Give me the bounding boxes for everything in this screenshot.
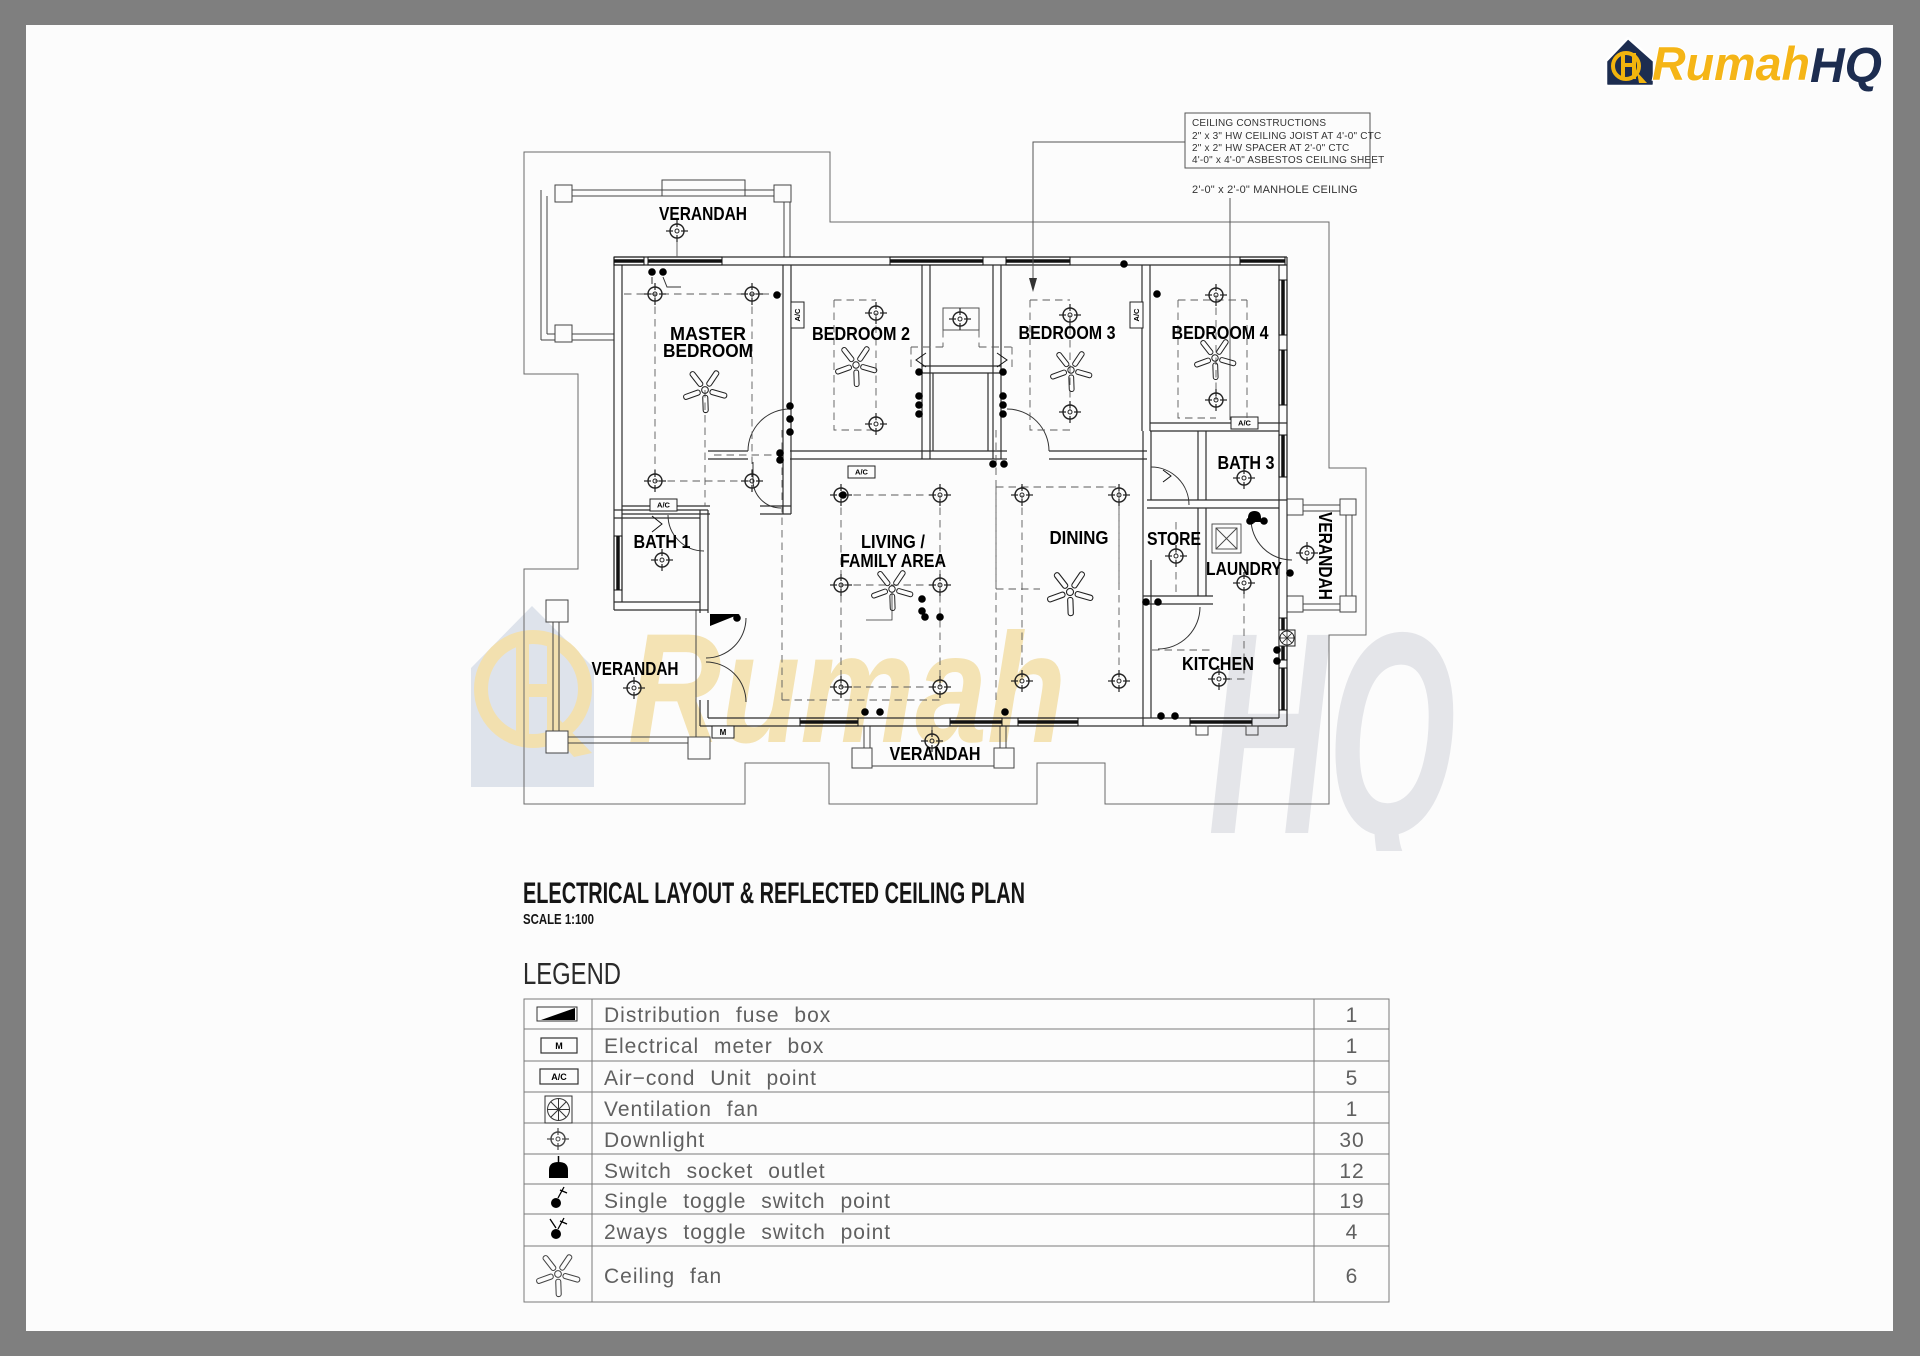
svg-text:2" x 3" HW CEILING JOIST AT 4': 2" x 3" HW CEILING JOIST AT 4'-0" CTC — [1192, 131, 1381, 142]
svg-text:M: M — [555, 1041, 563, 1051]
svg-text:VERANDAH: VERANDAH — [1315, 512, 1335, 600]
svg-text:A/C: A/C — [551, 1072, 567, 1082]
svg-text:SCALE 1:100: SCALE 1:100 — [523, 911, 594, 928]
svg-text:2'-0" x 2'-0" MANHOLE CEILING: 2'-0" x 2'-0" MANHOLE CEILING — [1192, 184, 1358, 196]
svg-text:KITCHEN: KITCHEN — [1182, 654, 1254, 674]
svg-text:6: 6 — [1346, 1265, 1359, 1288]
svg-text:VERANDAH: VERANDAH — [592, 659, 679, 679]
svg-text:1: 1 — [1346, 1004, 1359, 1027]
svg-text:M: M — [720, 728, 727, 737]
svg-text:Downlight: Downlight — [604, 1129, 705, 1152]
svg-text:A/C: A/C — [793, 308, 802, 322]
svg-text:1: 1 — [1346, 1098, 1359, 1121]
svg-text:A/C: A/C — [657, 501, 671, 510]
svg-text:5: 5 — [1346, 1067, 1359, 1090]
svg-text:CEILING CONSTRUCTIONS: CEILING CONSTRUCTIONS — [1192, 118, 1326, 129]
svg-text:2ways toggle switch point: 2ways toggle switch point — [604, 1221, 891, 1244]
svg-text:Electrical meter box: Electrical meter box — [604, 1035, 824, 1058]
svg-text:Rumah: Rumah — [1652, 37, 1810, 90]
svg-text:BEDROOM 2: BEDROOM 2 — [812, 324, 910, 344]
svg-text:ELECTRICAL LAYOUT & REFLECTED: ELECTRICAL LAYOUT & REFLECTED CEILING PL… — [523, 877, 1025, 910]
svg-text:Single toggle switch point: Single toggle switch point — [604, 1190, 891, 1213]
svg-text:VERANDAH: VERANDAH — [890, 744, 981, 764]
svg-text:A/C: A/C — [1238, 419, 1252, 428]
svg-text:A/C: A/C — [1132, 308, 1141, 322]
svg-text:4'-0" x 4'-0" ASBESTOS CEILING: 4'-0" x 4'-0" ASBESTOS CEILING SHEET — [1192, 155, 1384, 166]
svg-text:19: 19 — [1339, 1190, 1364, 1213]
svg-text:HQ: HQ — [1208, 573, 1456, 895]
svg-text:FAMILY AREA: FAMILY AREA — [840, 551, 946, 571]
svg-text:Switch socket outlet: Switch socket outlet — [604, 1160, 826, 1183]
svg-text:LIVING /: LIVING / — [861, 532, 925, 552]
svg-text:VERANDAH: VERANDAH — [659, 204, 747, 224]
svg-text:BATH 3: BATH 3 — [1218, 453, 1275, 473]
svg-text:BEDROOM 4: BEDROOM 4 — [1172, 323, 1269, 343]
svg-text:STORE: STORE — [1147, 529, 1201, 549]
svg-text:12: 12 — [1339, 1160, 1364, 1183]
svg-text:LEGEND: LEGEND — [523, 956, 621, 991]
svg-text:BEDROOM: BEDROOM — [663, 341, 753, 361]
svg-text:LAUNDRY: LAUNDRY — [1206, 559, 1282, 579]
svg-text:Distribution fuse box: Distribution fuse box — [604, 1004, 831, 1027]
svg-text:1: 1 — [1346, 1035, 1359, 1058]
svg-text:2" x 2" HW SPACER AT 2'-0" CT: 2" x 2" HW SPACER AT 2'-0" CTC — [1192, 143, 1349, 154]
svg-text:HQ: HQ — [1810, 39, 1882, 93]
svg-text:BATH 1: BATH 1 — [634, 532, 691, 552]
svg-text:Ventilation fan: Ventilation fan — [604, 1098, 759, 1121]
svg-text:A/C: A/C — [855, 468, 869, 477]
svg-text:Ceiling fan: Ceiling fan — [604, 1265, 722, 1288]
svg-text:4: 4 — [1346, 1221, 1359, 1244]
svg-text:BEDROOM 3: BEDROOM 3 — [1019, 323, 1116, 343]
svg-text:Air−cond Unit point: Air−cond Unit point — [604, 1067, 817, 1090]
svg-text:30: 30 — [1339, 1129, 1364, 1152]
svg-text:DINING: DINING — [1050, 528, 1109, 548]
